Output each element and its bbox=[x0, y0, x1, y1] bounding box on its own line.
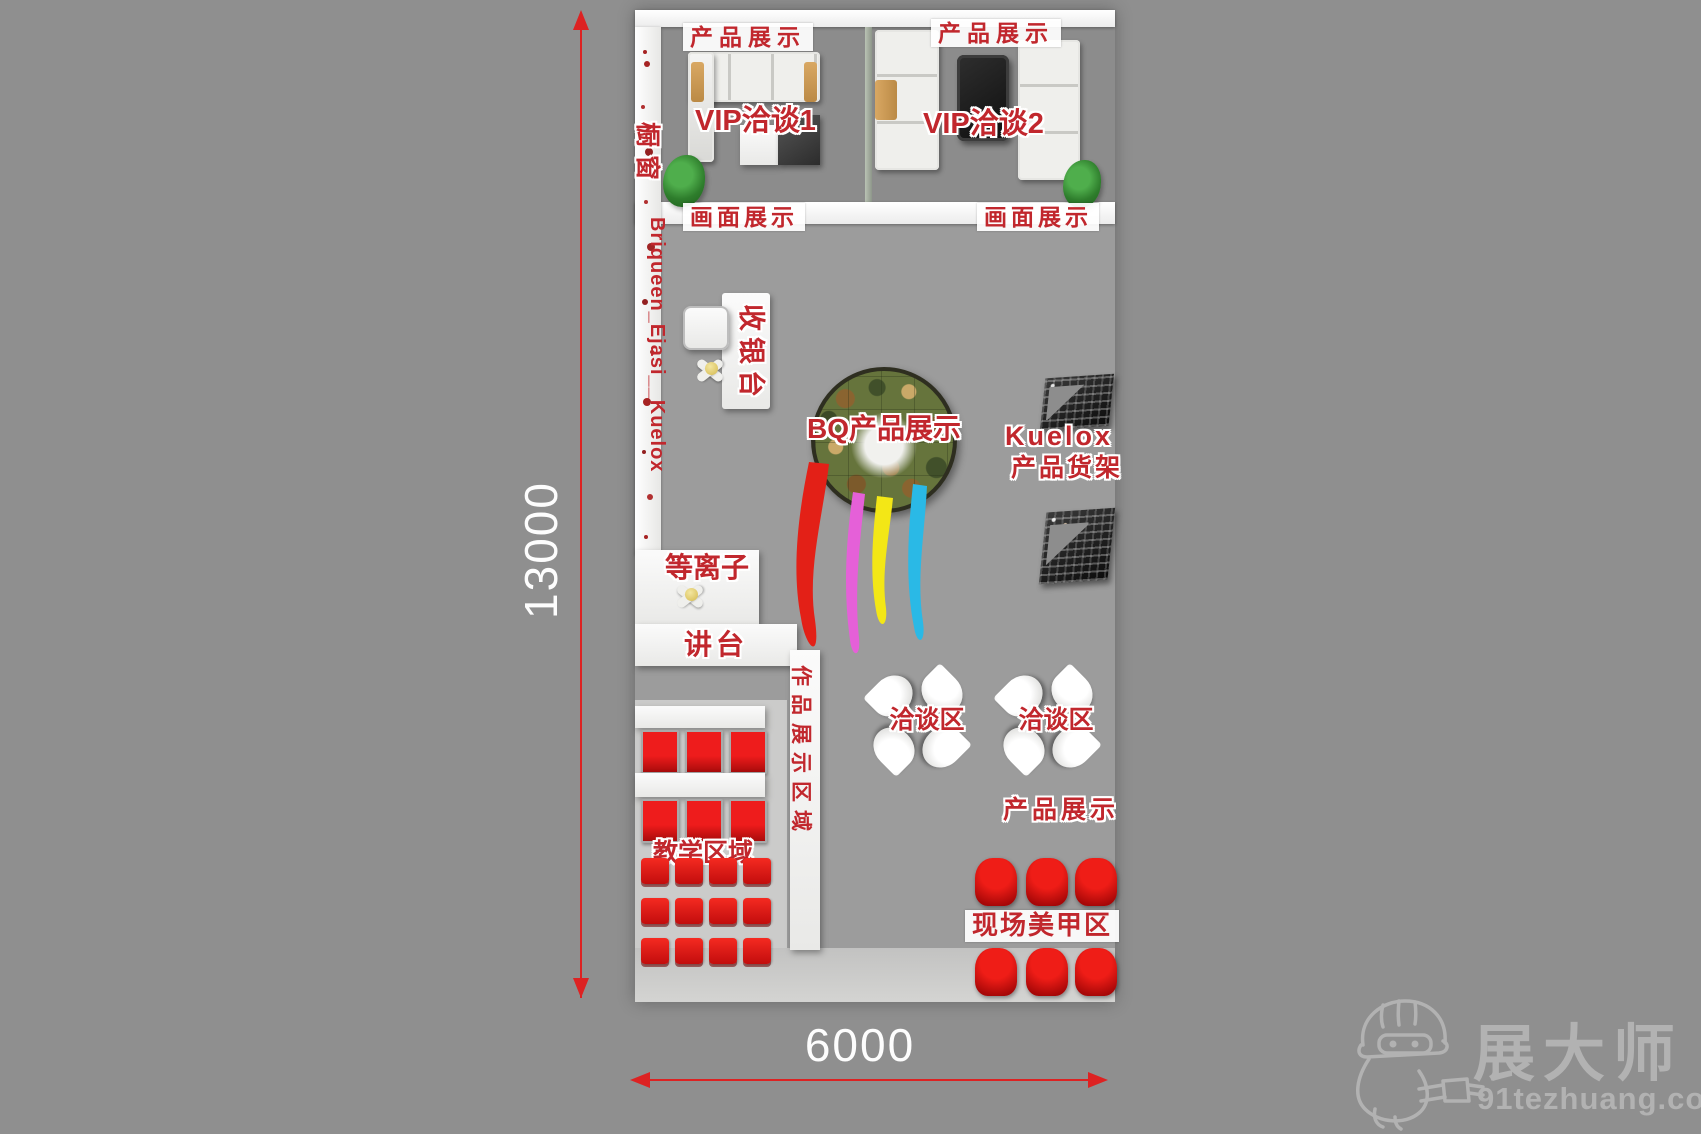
red-stool bbox=[709, 938, 737, 964]
label-negotiation-area-2: 洽谈区 bbox=[1006, 707, 1106, 735]
kuelox-shelf-bottom bbox=[1039, 508, 1115, 585]
red-stool bbox=[675, 938, 703, 964]
label-vip-room-2: VIP洽谈2 bbox=[923, 109, 1044, 141]
teaching-chair bbox=[641, 730, 679, 774]
label-negotiation-area-1: 洽谈区 bbox=[877, 707, 977, 735]
red-stool bbox=[709, 858, 737, 884]
height-dimension-value: 13000 bbox=[514, 415, 568, 685]
red-stool bbox=[743, 938, 771, 964]
teaching-chair bbox=[729, 730, 767, 774]
teaching-chair bbox=[729, 799, 767, 843]
width-arrow-left bbox=[630, 1072, 650, 1088]
red-stool bbox=[641, 858, 669, 884]
label-bq-product-display: BQ产品展示 bbox=[807, 414, 959, 445]
vip2-sofa-pillow bbox=[875, 80, 897, 120]
red-stool bbox=[641, 898, 669, 924]
nail-chair bbox=[975, 948, 1017, 996]
watermark-mascot-icon bbox=[1335, 993, 1485, 1133]
red-stool bbox=[743, 858, 771, 884]
teaching-chair bbox=[641, 799, 679, 843]
height-dimension-line bbox=[580, 16, 582, 998]
width-dimension-value: 6000 bbox=[770, 1018, 950, 1072]
teaching-table-1 bbox=[635, 706, 765, 728]
floorplan-area: 产品展示 产品展示 VIP洽谈1 VIP洽谈2 画面展示 画面展示 橱窗 Bri… bbox=[635, 10, 1115, 1002]
vip1-armrest-left bbox=[691, 62, 704, 102]
vip-divider-wall bbox=[865, 27, 872, 202]
nail-chair bbox=[975, 858, 1017, 906]
paint-splatter-decoration bbox=[643, 50, 647, 54]
teaching-chair bbox=[685, 730, 723, 774]
red-stool bbox=[675, 858, 703, 884]
label-kuelox-brand: Kuelox bbox=[1001, 422, 1117, 452]
height-arrow-top bbox=[573, 10, 589, 30]
cashier-chair bbox=[683, 306, 729, 350]
vip1-armrest-right bbox=[804, 62, 817, 102]
plasma-person bbox=[673, 578, 713, 622]
label-vip-room-1: VIP洽谈1 bbox=[695, 106, 816, 138]
watermark: 展大师 91tezhuang.com bbox=[1335, 985, 1701, 1134]
label-brand-wall: Briqueen_Ejasi__Kuelox bbox=[645, 217, 668, 472]
nail-chair bbox=[1075, 858, 1117, 906]
width-arrow-right bbox=[1088, 1072, 1108, 1088]
label-cashier: 收银台 bbox=[735, 304, 765, 403]
watermark-brand-text: 展大师 bbox=[1473, 1003, 1683, 1093]
nail-chair bbox=[1026, 948, 1068, 996]
label-picture-display-right: 画面展示 bbox=[977, 203, 1099, 231]
red-stool bbox=[709, 898, 737, 924]
label-product-display-top-left: 产品展示 bbox=[683, 23, 813, 51]
label-kuelox-shelf: 产品货架 bbox=[1003, 455, 1131, 483]
nail-chair bbox=[1026, 858, 1068, 906]
red-stool bbox=[641, 938, 669, 964]
cashier-person bbox=[693, 350, 733, 398]
red-stool bbox=[743, 898, 771, 924]
teaching-chair bbox=[685, 799, 723, 843]
label-podium: 讲台 bbox=[635, 630, 797, 661]
label-picture-display-left: 画面展示 bbox=[683, 203, 805, 231]
label-product-display-bottom: 产品展示 bbox=[983, 797, 1139, 825]
label-window-display: 橱窗 bbox=[633, 122, 661, 188]
label-works-display-area: 作品展示区域 bbox=[787, 665, 817, 839]
paint-drips-graphic bbox=[793, 460, 953, 675]
height-arrow-bottom bbox=[573, 978, 589, 998]
width-dimension-line bbox=[636, 1079, 1104, 1081]
teaching-table-2 bbox=[635, 773, 765, 797]
label-product-display-top-right: 产品展示 bbox=[931, 19, 1061, 47]
booth-floorplan-image: 产品展示 产品展示 VIP洽谈1 VIP洽谈2 画面展示 画面展示 橱窗 Bri… bbox=[0, 0, 1701, 1134]
nail-chair bbox=[1075, 948, 1117, 996]
label-nail-area: 现场美甲区 bbox=[965, 910, 1119, 942]
watermark-site-url: 91tezhuang.com bbox=[1477, 1081, 1701, 1117]
red-stool bbox=[675, 898, 703, 924]
